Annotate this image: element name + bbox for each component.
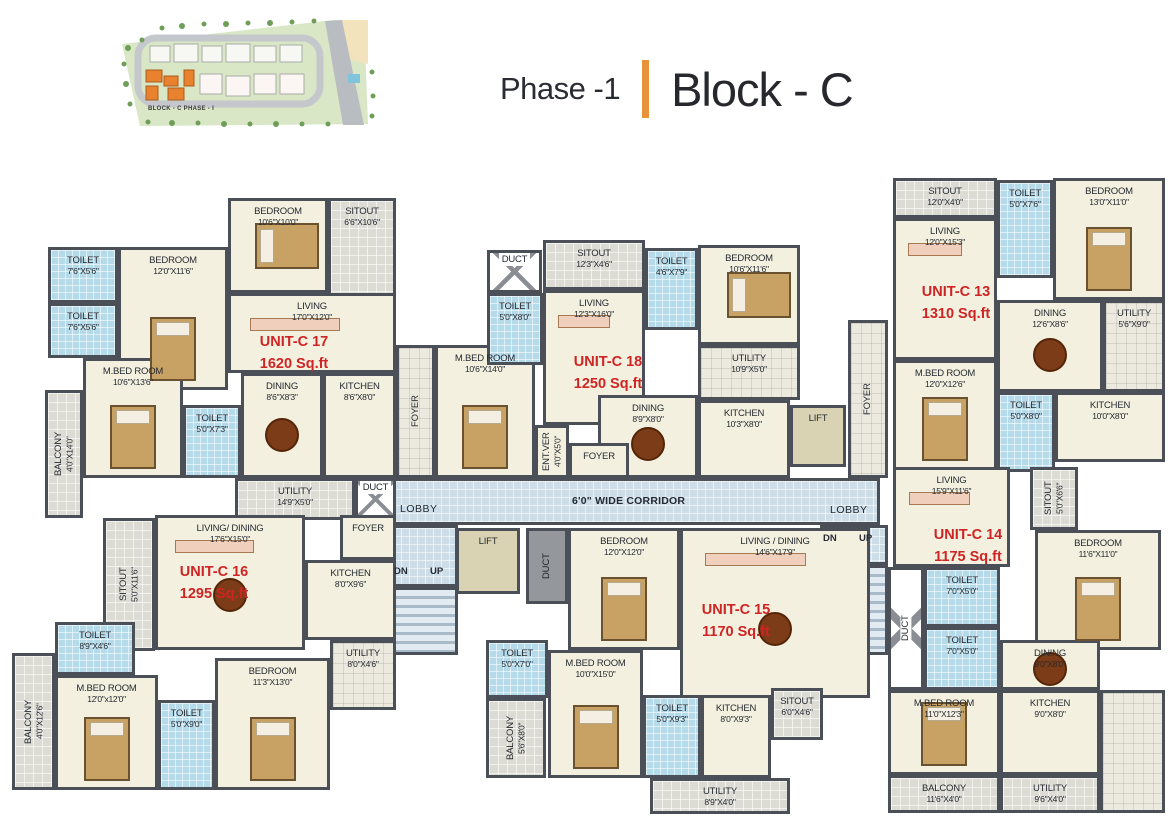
room-label: BEDROOM10'6"X10'0" <box>231 201 325 228</box>
room-lift: LIFT <box>790 405 846 467</box>
room-c16-toilet: TOILET5'0"X9'0" <box>158 700 215 790</box>
room-c15-kitchen: KITCHEN8'0"X9'3" <box>701 695 771 778</box>
room-c18-toilet: TOILET4'6"X7'9" <box>645 248 698 330</box>
room-c17-duct: DUCT <box>355 478 396 520</box>
room-label: DUCT <box>499 253 531 266</box>
room-c13-kitchen: KITCHEN10'0"X8'0" <box>1055 392 1165 462</box>
room-duct: DUCT <box>526 528 568 604</box>
room-c17-kitchen: KITCHEN8'6"X8'0" <box>323 373 396 478</box>
unit-label-c16: UNIT-C 161295 Sq.ft <box>158 562 270 606</box>
room-label: LIVING15'9"X11'6" <box>896 470 1007 497</box>
room-label: ENT.VER4'0"X5'0" <box>541 428 563 475</box>
room-label: TOILET7'0"X5'0" <box>927 630 997 657</box>
room-c17-balcony: BALCONY4'0"X14'0" <box>45 390 83 518</box>
room-label: BALCONY11'6"X4'0" <box>891 778 997 805</box>
room-foyer: FOYER <box>848 320 888 478</box>
plan-text-lobby: LOBBY <box>830 504 868 516</box>
room-label: SITOUT6'6"X10'6" <box>331 201 393 228</box>
room-label: LIVING / DINING14'6"X17'9" <box>683 531 867 558</box>
room-c15-balcony: BALCONY5'6"X8'0" <box>486 698 546 778</box>
room-label: LIFT <box>459 531 517 547</box>
room-c18-foyer: FOYER <box>569 443 629 478</box>
plan-text-dn: DN <box>823 533 837 544</box>
floor-plan-page: BLOCK - C PHASE - I Phase -1 Block - C F… <box>0 0 1169 820</box>
room-label: BALCONY4'0"X12'6" <box>23 656 45 787</box>
bed-furniture <box>462 405 508 469</box>
plan-text-6-0-wide-corridor: 6'0" WIDE CORRIDOR <box>572 495 685 507</box>
room-c18-ent-ver: ENT.VER4'0"X5'0" <box>535 425 569 478</box>
room-label: SITOUT12'3"X4'6" <box>546 243 642 270</box>
unit-label-c14: UNIT-C 141175 Sq.ft <box>912 525 1024 569</box>
room-c17-dining: DINING8'6"X8'3" <box>241 373 323 478</box>
room-label: KITCHEN8'0"X9'3" <box>704 698 768 725</box>
room-label: TOILET7'6"X5'6" <box>51 306 115 333</box>
room-label: UTILITY9'6"X4'0" <box>1003 778 1097 805</box>
room-c16-bedroom: BEDROOM11'3"X13'0" <box>215 658 330 790</box>
room-label: FOYER <box>862 323 873 475</box>
bed-furniture <box>110 405 156 469</box>
room-c17-m-bed-room: M.BED ROOM10'6"X13'6" <box>83 358 183 478</box>
room-label: FOYER <box>343 518 393 534</box>
room-c13-utility: UTILITY5'6"X9'0" <box>1103 300 1165 392</box>
bed-furniture <box>727 272 791 318</box>
room-c16-balcony: BALCONY4'0"X12'6" <box>12 653 55 790</box>
room-label: KITCHEN8'0"X9'6" <box>308 563 393 590</box>
room-label: TOILET7'0"X5'0" <box>927 570 997 597</box>
room-label: DINING8'6"X8'3" <box>244 376 320 403</box>
room-label: LIVING/ DINING17'6"X15'0" <box>158 518 302 545</box>
room-c16-foyer: FOYER <box>340 515 396 560</box>
room-label: DINING12'6"X8'6" <box>1000 303 1100 330</box>
room-c14-kitchen: KITCHEN9'0"X8'0" <box>1000 690 1100 775</box>
room-c17-sitout: SITOUT6'6"X10'6" <box>328 198 396 303</box>
unit-label-c18: UNIT-C 181250 Sq.ft <box>552 352 664 396</box>
bed-furniture <box>1075 577 1121 641</box>
room-c17-toilet: TOILET7'6"X5'6" <box>48 247 118 303</box>
room-c17-bedroom: BEDROOM10'6"X10'0" <box>228 198 328 293</box>
room-c15-bedroom: BEDROOM12'0"X12'0" <box>568 528 680 650</box>
room-foyer: FOYER <box>396 345 435 478</box>
room-label: TOILET5'0"X7'3" <box>186 408 238 435</box>
room-c13-toilet: TOILET5'0"X7'6" <box>997 180 1053 278</box>
room-c13-sitout: SITOUT12'0"X4'0" <box>893 178 997 218</box>
room-c14-balcony: BALCONY11'6"X4'0" <box>888 775 1000 813</box>
bed-furniture <box>573 705 619 769</box>
room-c14-duct: DUCT <box>888 567 924 690</box>
room-label: DUCT <box>360 481 392 494</box>
room-label: LIVING12'3"X16'0" <box>546 293 642 320</box>
room-c16-toilet: TOILET8'9"X4'6" <box>55 622 135 675</box>
dining-table-furniture <box>265 418 299 452</box>
floor-plan: FOYERFOYERLIFTLIFTDUCTTOILET7'6"X5'6"TOI… <box>0 0 1169 820</box>
room-label: UTILITY5'6"X9'0" <box>1106 303 1162 330</box>
room-label: TOILET5'0"X8'0" <box>490 296 540 323</box>
room-c17-utility: UTILITY14'9"X5'0" <box>235 478 355 520</box>
bed-furniture <box>1086 227 1132 291</box>
room-label: M.BED ROOM10'6"X14'0" <box>438 348 532 375</box>
room-label: M.BED ROOM10'0"X15'0" <box>551 653 640 680</box>
room-label: TOILET5'0"X7'6" <box>1000 183 1050 210</box>
dining-table-furniture <box>1033 338 1067 372</box>
plan-text-dn: DN <box>394 566 408 577</box>
unit-label-c13: UNIT-C 131310 Sq.ft <box>900 282 1012 326</box>
plan-text-lobby: LOBBY <box>400 503 438 515</box>
room-lobby-left <box>390 525 458 587</box>
room-label: M.BED ROOM10'6"X13'6" <box>86 361 180 388</box>
room-label: LIVING17'0"X12'0" <box>231 296 393 323</box>
room-c13-m-bed-room: M.BED ROOM12'0"X12'6" <box>893 360 997 470</box>
bed-furniture <box>922 397 968 461</box>
room-label: M.BED ROOM11'0"X12'3" <box>891 693 997 720</box>
room-label: M.BED ROOM12'0"X12'6" <box>896 363 994 390</box>
room-c15-toilet: TOILET5'0"X7'0" <box>486 640 548 698</box>
room-label: BEDROOM13'0"X11'0" <box>1056 181 1162 208</box>
bed-furniture <box>601 577 647 641</box>
room-label: TOILET5'0"X9'0" <box>161 703 212 730</box>
room-label: UTILITY14'9"X5'0" <box>238 481 352 508</box>
room-label: TOILET5'0"X7'0" <box>489 643 545 670</box>
room-c16-kitchen: KITCHEN8'0"X9'6" <box>305 560 396 640</box>
plan-text-up: UP <box>430 566 443 577</box>
room-label: BEDROOM10'6"X11'6" <box>701 248 797 275</box>
room-c15-utility: UTILITY8'9"X4'0" <box>650 778 790 814</box>
room-c18-kitchen: KITCHEN10'3"X8'0" <box>698 400 790 478</box>
room-label: BALCONY4'0"X14'0" <box>53 393 75 515</box>
room-label: TOILET5'0"X9'3" <box>646 698 698 725</box>
room-c14-bedroom: BEDROOM11'6"X11'0" <box>1035 530 1161 650</box>
room-c14-toilet: TOILET7'0"X5'0" <box>924 627 1000 690</box>
room-label: TOILET5'0"X8'0" <box>1000 395 1052 422</box>
room-c16-m-bed-room: M.BED ROOM12'0"x12'0" <box>55 675 158 790</box>
room-label: LIVING12'0"X15'3" <box>896 221 994 248</box>
room-label: DINING9'0"X8'0" <box>1003 643 1097 670</box>
room-label: BEDROOM12'0"X11'6" <box>121 250 225 277</box>
room-c16-utility: UTILITY8'0"X4'6" <box>330 640 396 710</box>
room-label: DINING8'9"X8'0" <box>601 398 695 425</box>
room-label: SITOUT12'0"X4'0" <box>896 181 994 208</box>
room-label: KITCHEN8'6"X8'0" <box>326 376 393 403</box>
room-label: SITOUT5'0"X6'6" <box>1043 470 1065 527</box>
unit-label-c17: UNIT-C 171620 Sq.ft <box>238 332 350 376</box>
room-label: UTILITY8'0"X4'6" <box>333 643 393 670</box>
room-label: FOYER <box>410 348 421 475</box>
room-c13-toilet: TOILET5'0"X8'0" <box>997 392 1055 472</box>
room-c17-toilet: TOILET7'6"X5'6" <box>48 303 118 358</box>
room-c15-sitout: SITOUT6'0"X4'6" <box>771 688 823 740</box>
room-c14-m-bed-room: M.BED ROOM11'0"X12'3" <box>888 690 1000 775</box>
room-c17-toilet: TOILET5'0"X7'3" <box>183 405 241 478</box>
room-c14-sitout: SITOUT5'0"X6'6" <box>1030 467 1078 530</box>
room-lift: LIFT <box>456 528 520 594</box>
room-c14-dining: DINING9'0"X8'0" <box>1000 640 1100 690</box>
room-label: TOILET8'9"X4'6" <box>58 625 132 652</box>
room-label: SITOUT6'0"X4'6" <box>774 691 820 718</box>
room-c14-utility: UTILITY9'6"X4'0" <box>1000 775 1100 813</box>
unit-label-c15: UNIT-C 151170 Sq.ft <box>680 600 792 644</box>
room-label: KITCHEN10'0"X8'0" <box>1058 395 1162 422</box>
room-c14-terrace <box>1100 690 1165 813</box>
room-label: FOYER <box>572 446 626 462</box>
room-c18-sitout: SITOUT12'3"X4'6" <box>543 240 645 290</box>
bed-furniture <box>255 223 319 269</box>
room-label: BEDROOM11'6"X11'0" <box>1038 533 1158 560</box>
room-c15-toilet: TOILET5'0"X9'3" <box>643 695 701 778</box>
room-c18-m-bed-room: M.BED ROOM10'6"X14'0" <box>435 345 535 478</box>
room-label: TOILET4'6"X7'9" <box>648 251 695 278</box>
room-label: BALCONY5'6"X8'0" <box>505 701 527 775</box>
room-c13-bedroom: BEDROOM13'0"X11'0" <box>1053 178 1165 300</box>
room-c13-dining: DINING12'6"X8'6" <box>997 300 1103 392</box>
plan-text-up: UP <box>859 533 872 544</box>
room-label: TOILET7'6"X5'6" <box>51 250 115 277</box>
dining-table-furniture <box>631 427 665 461</box>
room-c18-bedroom: BEDROOM10'6"X11'6" <box>698 245 800 345</box>
room-label: DUCT <box>541 531 552 601</box>
room-label: LIFT <box>793 408 843 424</box>
room-label: M.BED ROOM12'0"x12'0" <box>58 678 155 705</box>
bed-furniture <box>84 717 130 781</box>
room-label: BEDROOM12'0"X12'0" <box>571 531 677 558</box>
room-stairs-left <box>390 587 458 655</box>
room-c18-utility: UTILITY10'9"X5'0" <box>698 345 800 400</box>
room-c15-m-bed-room: M.BED ROOM10'0"X15'0" <box>548 650 643 778</box>
room-label: DUCT <box>900 570 911 687</box>
room-label: UTILITY10'9"X5'0" <box>701 348 797 375</box>
room-c18-duct: DUCT <box>487 250 542 293</box>
room-label: BEDROOM11'3"X13'0" <box>218 661 327 688</box>
bed-furniture <box>250 717 296 781</box>
room-label: UTILITY8'9"X4'0" <box>653 781 787 808</box>
room-label: KITCHEN9'0"X8'0" <box>1003 693 1097 720</box>
room-label: KITCHEN10'3"X8'0" <box>701 403 787 430</box>
room-c14-toilet: TOILET7'0"X5'0" <box>924 567 1000 627</box>
